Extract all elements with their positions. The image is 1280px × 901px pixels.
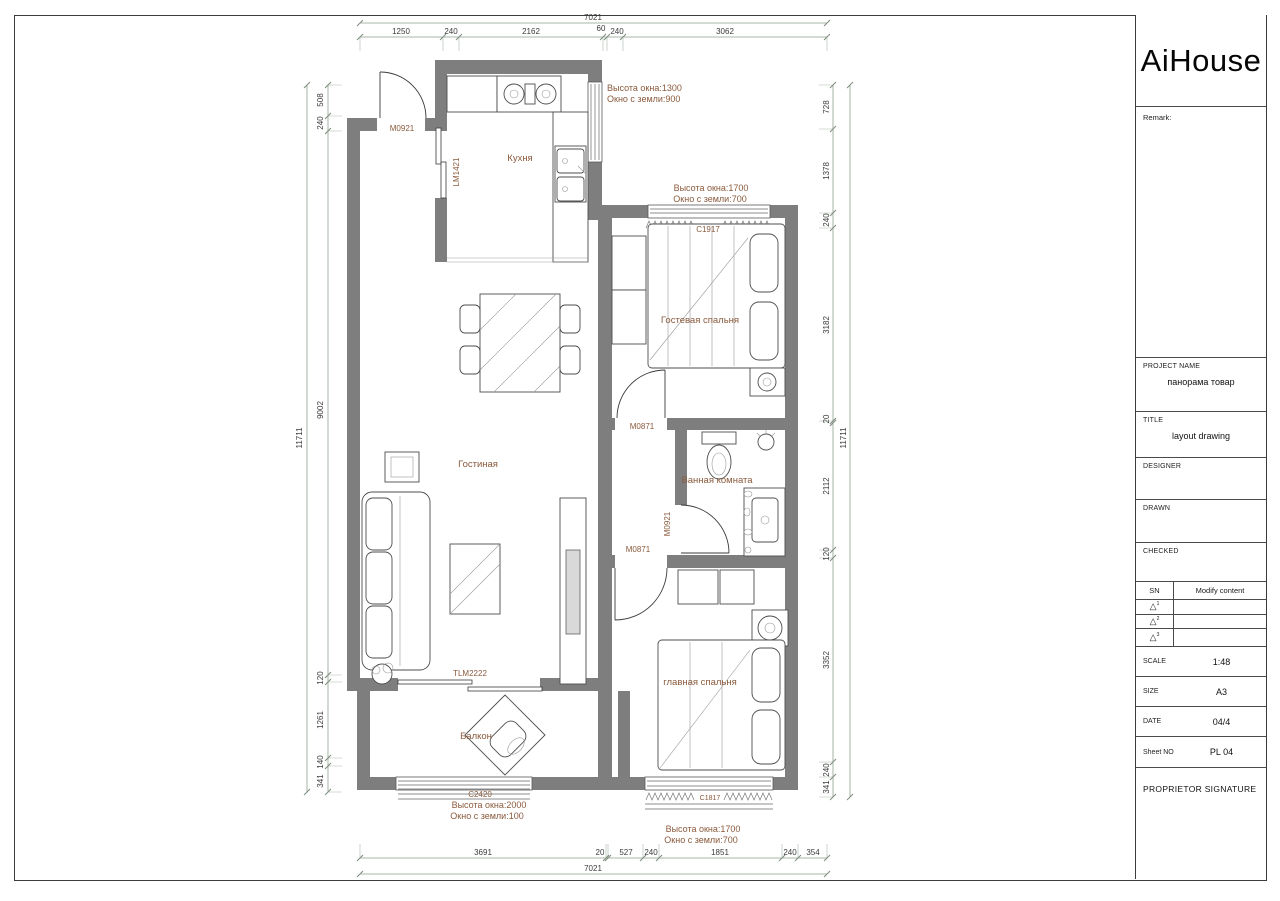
dim-right-seg: 240 bbox=[822, 763, 831, 777]
dim-top-total: 7021 bbox=[584, 13, 602, 22]
designer-section: DESIGNER bbox=[1136, 458, 1266, 500]
dim-top-seg: 2162 bbox=[522, 27, 540, 36]
room-label-kitchen: Кухня bbox=[507, 153, 532, 164]
revision-table-header: SN Modify content bbox=[1136, 582, 1266, 600]
dim-bottom-seg: 3691 bbox=[474, 848, 492, 857]
annotation-guest-window: Высота окна:1700 bbox=[674, 183, 749, 193]
dim-bottom-seg: 354 bbox=[806, 848, 820, 857]
annotation-balcony-window: Окно с земли:100 bbox=[450, 811, 523, 821]
revision-cell: △2 bbox=[1136, 615, 1174, 629]
room-label-master-bedroom: главная спальня bbox=[663, 677, 737, 688]
revision-content-cell bbox=[1174, 629, 1266, 646]
label-kitchen-door: LM1421 bbox=[452, 157, 461, 186]
remark-label: Remark: bbox=[1136, 107, 1266, 122]
room-label-guest-bedroom: Гостевая спальня bbox=[661, 315, 739, 326]
dim-top-seg: 60 bbox=[597, 24, 606, 33]
revision-cell: △1 bbox=[1136, 600, 1174, 614]
label-master-door: M0871 bbox=[626, 545, 651, 554]
revision-row: △1 bbox=[1136, 600, 1266, 615]
designer-label: DESIGNER bbox=[1136, 458, 1266, 470]
furniture-bathroom bbox=[702, 430, 785, 556]
room-label-bathroom: Ванная комната bbox=[681, 475, 753, 486]
room-label-balcony: Балкон bbox=[460, 731, 492, 742]
scale-section: SCALE 1:48 bbox=[1136, 647, 1266, 677]
dim-right-seg: 728 bbox=[822, 100, 831, 114]
annotation-master-window: Окно с земли:700 bbox=[664, 835, 737, 845]
dim-right-seg: 240 bbox=[822, 213, 831, 227]
remark-section: Remark: bbox=[1136, 107, 1266, 358]
size-label: SIZE bbox=[1136, 688, 1185, 695]
scale-value: 1:48 bbox=[1185, 657, 1266, 667]
label-balcony-door: TLM2222 bbox=[453, 669, 487, 678]
title-section: TITLE layout drawing bbox=[1136, 412, 1266, 458]
dim-bottom-seg: 240 bbox=[783, 848, 797, 857]
dim-left-seg: 240 bbox=[316, 116, 325, 130]
dim-left-seg: 341 bbox=[316, 774, 325, 788]
size-section: SIZE A3 bbox=[1136, 677, 1266, 707]
revision-triangle-icon: △1 bbox=[1150, 601, 1160, 612]
dim-bottom-seg: 20 bbox=[596, 848, 605, 857]
annotation-guest-window: Окно с земли:700 bbox=[673, 194, 746, 204]
revision-content-cell bbox=[1174, 600, 1266, 614]
modify-content-header: Modify content bbox=[1174, 582, 1266, 599]
app-logo: AiHouse bbox=[1136, 15, 1266, 107]
dim-right-seg: 3182 bbox=[822, 316, 831, 334]
dim-left-seg: 120 bbox=[316, 671, 325, 685]
dim-right-seg: 2112 bbox=[822, 477, 831, 495]
drawn-label: DRAWN bbox=[1136, 500, 1266, 512]
sheet-no-value: PL 04 bbox=[1185, 747, 1266, 757]
revision-cell: △3 bbox=[1136, 629, 1174, 646]
furniture-master-bedroom bbox=[658, 570, 788, 770]
size-value: A3 bbox=[1185, 687, 1266, 697]
dim-top-seg: 240 bbox=[610, 27, 624, 36]
title-label: TITLE bbox=[1136, 412, 1266, 424]
dim-bottom-seg: 527 bbox=[619, 848, 633, 857]
sheet-no-label: Sheet NO bbox=[1136, 749, 1185, 756]
title-block: AiHouse Remark: PROJECT NAME панорама то… bbox=[1135, 15, 1266, 879]
label-guest-door: M0871 bbox=[630, 422, 655, 431]
revision-triangle-icon: △2 bbox=[1150, 616, 1160, 627]
project-name-section: PROJECT NAME панорама товар bbox=[1136, 358, 1266, 412]
dim-left-seg: 508 bbox=[316, 93, 325, 107]
revision-content-cell bbox=[1174, 615, 1266, 629]
dim-bottom-seg: 1851 bbox=[711, 848, 729, 857]
dim-right-seg: 120 bbox=[822, 547, 831, 561]
dim-right-seg: 3352 bbox=[822, 651, 831, 669]
date-value: 04/4 bbox=[1185, 717, 1266, 727]
dim-top-seg: 240 bbox=[444, 27, 458, 36]
floor-plan-canvas[interactable]: 7021 1250 240 2162 60 240 3062 7021 3691… bbox=[0, 0, 1280, 901]
dim-right-seg: 1378 bbox=[822, 162, 831, 180]
sn-header: SN bbox=[1136, 582, 1174, 599]
revision-triangle-icon: △3 bbox=[1150, 632, 1160, 643]
label-entry-door: M0921 bbox=[390, 124, 415, 133]
annotation-kitchen-window: Окно с земли:900 bbox=[607, 94, 680, 104]
annotation-master-window: Высота окна:1700 bbox=[666, 824, 741, 834]
dim-right-total: 11711 bbox=[839, 427, 848, 449]
annotation-balcony-window: Высота окна:2000 bbox=[452, 800, 527, 810]
date-section: DATE 04/4 bbox=[1136, 707, 1266, 737]
drawing-sheet: 7021 1250 240 2162 60 240 3062 7021 3691… bbox=[0, 0, 1280, 901]
dim-left-total: 11711 bbox=[295, 427, 304, 449]
dim-bottom-seg: 240 bbox=[644, 848, 658, 857]
checked-section: CHECKED bbox=[1136, 543, 1266, 582]
sheet-no-section: Sheet NO PL 04 bbox=[1136, 737, 1266, 768]
dim-right-seg: 341 bbox=[822, 780, 831, 794]
dim-left-seg: 9002 bbox=[316, 401, 325, 419]
revision-table: SN Modify content △1 △2 △3 bbox=[1136, 582, 1266, 647]
furniture-kitchen bbox=[447, 76, 588, 262]
label-bath-door: M0921 bbox=[663, 511, 672, 536]
dim-top-seg: 1250 bbox=[392, 27, 410, 36]
drawn-section: DRAWN bbox=[1136, 500, 1266, 543]
room-label-living: Гостиная bbox=[458, 459, 498, 470]
date-label: DATE bbox=[1136, 718, 1185, 725]
furniture-guest-bedroom bbox=[612, 224, 785, 396]
revision-row: △3 bbox=[1136, 629, 1266, 646]
title-value: layout drawing bbox=[1136, 431, 1266, 441]
dim-top-seg: 3062 bbox=[716, 27, 734, 36]
furniture-living-room bbox=[362, 294, 586, 684]
revision-row: △2 bbox=[1136, 615, 1266, 630]
label-balcony-window: C2420 bbox=[468, 790, 492, 799]
project-name-label: PROJECT NAME bbox=[1136, 358, 1266, 370]
dim-bottom-total: 7021 bbox=[584, 864, 602, 873]
signature-label: PROPRIETOR SIGNATURE bbox=[1136, 768, 1266, 794]
signature-section: PROPRIETOR SIGNATURE bbox=[1136, 768, 1266, 879]
project-name-value: панорама товар bbox=[1136, 377, 1266, 387]
dim-left-seg: 140 bbox=[316, 755, 325, 769]
dim-right-seg: 20 bbox=[822, 414, 831, 423]
scale-label: SCALE bbox=[1136, 658, 1185, 665]
label-guest-window: C1917 bbox=[696, 225, 720, 234]
label-master-window: C1817 bbox=[700, 795, 721, 802]
dim-left-seg: 1261 bbox=[316, 711, 325, 729]
annotation-kitchen-window: Высота окна:1300 bbox=[607, 83, 682, 93]
checked-label: CHECKED bbox=[1136, 543, 1266, 555]
